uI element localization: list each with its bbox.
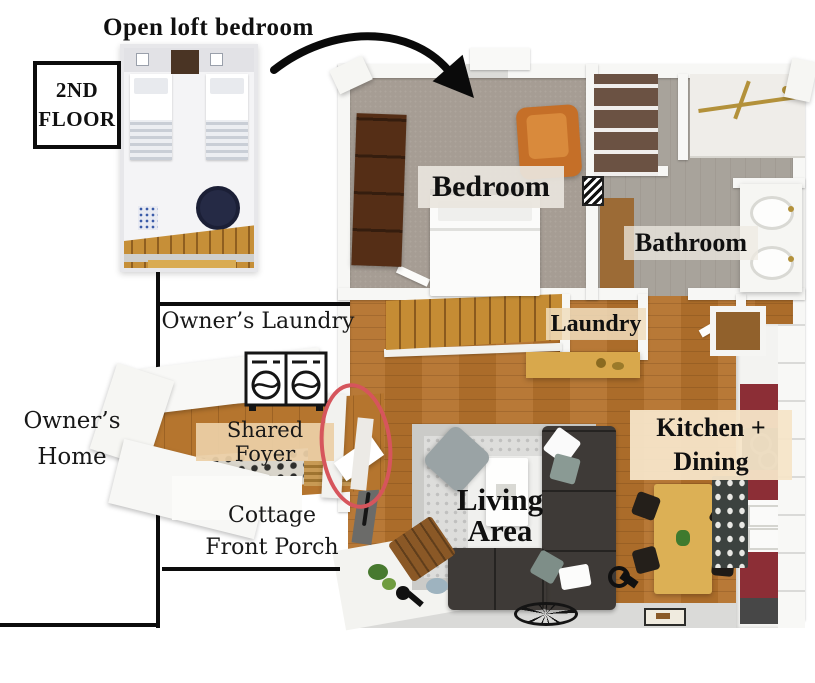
blanket <box>206 120 248 160</box>
owners-home-line1: Owner’s <box>8 404 136 440</box>
wall-clock-icon <box>514 602 578 626</box>
bedroom-label: Bedroom <box>418 166 564 208</box>
second-floor-miniplan <box>120 44 258 272</box>
shared-foyer-label: Shared Foyer <box>196 423 334 461</box>
armchair-seat <box>526 113 569 160</box>
doormat-mark <box>656 613 670 619</box>
wall-art-tile <box>582 176 604 206</box>
blue-stool <box>426 578 448 594</box>
table-centerpiece <box>676 530 690 546</box>
bedroom-dresser <box>351 113 406 267</box>
cottage-porch-line2: Front Porch <box>186 532 358 564</box>
plant-small <box>382 578 396 590</box>
loft-bed-left <box>130 74 172 160</box>
first-floor-plan: Bedroom Bathroom Laundry Kitchen + Dinin… <box>338 58 815 632</box>
loft-navy-ottoman <box>196 186 240 230</box>
kitchen-runner-rug <box>712 476 748 568</box>
loft-bed-right <box>206 74 248 160</box>
sink-basin-2 <box>748 528 780 550</box>
laundry-label: Laundry <box>546 308 646 340</box>
living-label-line1: Living <box>457 484 543 515</box>
owner-boundary-bottom-line <box>0 623 160 627</box>
faucet-1 <box>788 206 794 212</box>
loft-landing-wood <box>148 260 236 268</box>
sofa-chaise-section <box>448 548 546 610</box>
sink-basin-1 <box>748 505 780 527</box>
owners-home-line2: Home <box>8 440 136 476</box>
console-decor-2 <box>612 362 624 370</box>
washer-dryer-icon <box>243 350 329 414</box>
second-floor-badge-line1: 2ND <box>56 76 98 105</box>
pillow <box>210 78 244 94</box>
pillow <box>134 78 168 94</box>
curved-arrow-icon <box>268 22 483 107</box>
bed-fold-line <box>430 228 540 231</box>
owner-boundary-top-line <box>156 302 350 306</box>
cottage-front-porch-label: Cottage Front Porch <box>186 500 358 564</box>
living-area-label: Living Area <box>442 484 558 546</box>
floorplan-canvas: Open loft bedroom 2ND FLOOR <box>0 0 815 683</box>
vanity-sink-1 <box>750 196 794 230</box>
owners-home-label: Owner’s Home <box>8 404 136 475</box>
kitchen-pantry-wood <box>710 306 766 356</box>
bathroom-label: Bathroom <box>624 226 758 260</box>
bath-closet-shelves <box>594 74 658 176</box>
loft-shelf-icon-left <box>136 53 149 66</box>
kitchen-label-line1: Kitchen + <box>656 411 765 445</box>
second-floor-badge: 2ND FLOOR <box>33 61 121 149</box>
loft-nightstand <box>171 50 199 74</box>
porch-divider-line <box>162 567 340 571</box>
kitchen-dark-cabinet <box>740 598 780 624</box>
loft-shelf-icon-right <box>210 53 223 66</box>
blanket <box>130 120 172 160</box>
dining-table <box>654 484 712 594</box>
loft-mini-rug <box>138 206 158 230</box>
bedroom-bed <box>430 194 540 296</box>
shower-wall <box>678 74 688 160</box>
hall-console <box>526 352 640 378</box>
front-doormat <box>644 608 686 626</box>
second-floor-badge-line2: FLOOR <box>38 105 115 134</box>
living-label-line2: Area <box>468 515 533 546</box>
shower-gold-bar <box>698 95 798 113</box>
kitchen-dining-label: Kitchen + Dining <box>630 410 792 480</box>
cottage-porch-line1: Cottage <box>186 500 358 532</box>
kitchen-label-line2: Dining <box>673 445 748 479</box>
shower-gold-pipe <box>733 81 750 120</box>
console-decor-1 <box>596 358 606 368</box>
owners-laundry-label: Owner’s Laundry <box>160 309 356 334</box>
faucet-2 <box>788 256 794 262</box>
